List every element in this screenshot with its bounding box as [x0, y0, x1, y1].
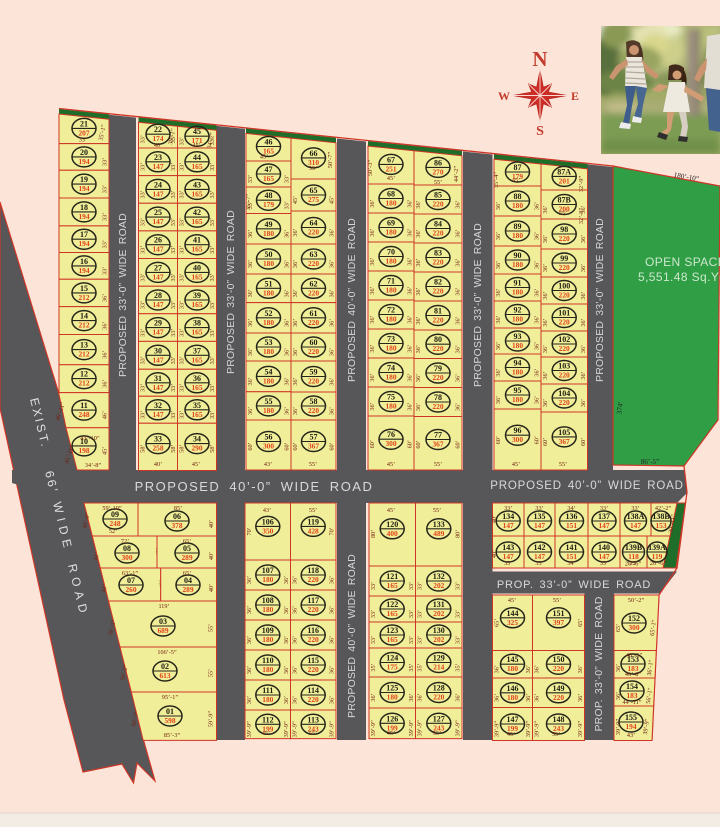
svg-text:123: 123	[386, 626, 398, 635]
svg-text:82: 82	[434, 278, 442, 287]
svg-text:106: 106	[262, 517, 274, 526]
svg-text:55’: 55’	[208, 624, 215, 632]
svg-text:180: 180	[263, 376, 274, 385]
svg-text:39’-9”: 39’-9”	[455, 720, 462, 736]
svg-text:36’: 36’	[415, 316, 422, 324]
svg-text:45’: 45’	[508, 597, 516, 604]
svg-text:165: 165	[387, 581, 398, 590]
svg-text:33’: 33’	[170, 273, 177, 281]
svg-text:220: 220	[559, 291, 570, 300]
svg-text:45: 45	[193, 127, 201, 136]
svg-text:113: 113	[307, 715, 319, 724]
svg-text:112: 112	[262, 715, 274, 724]
svg-text:220: 220	[308, 695, 319, 704]
svg-text:63’-1”: 63’-1”	[122, 570, 138, 577]
svg-text:55’: 55’	[434, 461, 442, 468]
svg-text:52’: 52’	[109, 528, 117, 535]
svg-text:165: 165	[191, 217, 202, 226]
svg-text:33’: 33’	[170, 384, 177, 392]
svg-text:139B: 139B	[625, 543, 643, 552]
svg-text:52: 52	[265, 309, 273, 318]
svg-text:36’: 36’	[455, 316, 462, 324]
svg-text:33’: 33’	[284, 175, 291, 183]
svg-text:36’: 36’	[415, 403, 422, 411]
svg-text:45’: 45’	[329, 196, 336, 204]
svg-text:36’: 36’	[415, 258, 422, 266]
svg-text:300: 300	[385, 439, 396, 448]
svg-text:36’: 36’	[329, 289, 336, 297]
svg-text:36’: 36’	[577, 694, 584, 702]
svg-text:07: 07	[127, 576, 135, 585]
svg-text:248: 248	[109, 519, 120, 528]
svg-text:33’: 33’	[140, 190, 147, 198]
svg-text:33’: 33’	[140, 328, 147, 336]
svg-text:220: 220	[553, 664, 564, 673]
svg-text:36’: 36’	[534, 396, 541, 404]
svg-text:72: 72	[387, 306, 395, 315]
svg-text:43’-10”: 43’-10”	[80, 435, 99, 442]
svg-text:258: 258	[152, 444, 163, 453]
svg-text:36’: 36’	[292, 606, 299, 614]
svg-text:180: 180	[512, 231, 523, 240]
svg-text:46’-8”: 46’-8”	[625, 671, 641, 678]
svg-text:33’: 33’	[140, 384, 147, 392]
svg-text:99: 99	[560, 254, 568, 263]
svg-text:147: 147	[152, 410, 163, 419]
svg-text:36’: 36’	[407, 286, 414, 294]
svg-text:613: 613	[159, 671, 170, 680]
svg-text:165: 165	[191, 245, 202, 254]
svg-text:179: 179	[263, 200, 274, 209]
svg-text:36’: 36’	[284, 230, 291, 238]
svg-text:74: 74	[387, 364, 395, 373]
svg-text:93: 93	[514, 332, 522, 341]
svg-text:367: 367	[559, 437, 570, 446]
svg-text:33’: 33’	[140, 163, 147, 171]
svg-text:23: 23	[154, 153, 162, 162]
svg-text:111: 111	[262, 686, 273, 695]
svg-text:60’: 60’	[534, 436, 541, 444]
svg-text:36’: 36’	[542, 205, 549, 213]
svg-text:36’: 36’	[329, 319, 336, 327]
svg-text:100: 100	[558, 282, 570, 291]
svg-text:180: 180	[263, 229, 274, 238]
svg-text:36’: 36’	[329, 696, 336, 704]
svg-text:180: 180	[512, 315, 523, 324]
svg-text:36’: 36’	[407, 402, 414, 410]
svg-text:33’: 33’	[209, 301, 216, 309]
svg-text:11: 11	[80, 401, 88, 410]
svg-text:36’: 36’	[534, 202, 541, 210]
svg-text:26’-6”: 26’-6”	[625, 561, 641, 568]
svg-text:70’: 70’	[246, 527, 253, 535]
svg-text:33’: 33’	[209, 328, 216, 336]
svg-text:44’-2”: 44’-2”	[453, 166, 460, 182]
svg-text:36’: 36’	[615, 692, 622, 700]
svg-text:33’: 33’	[179, 356, 186, 364]
svg-text:40’: 40’	[208, 552, 215, 560]
svg-text:46: 46	[265, 138, 273, 147]
svg-text:40’: 40’	[154, 142, 162, 149]
svg-text:33’: 33’	[179, 384, 186, 392]
svg-text:36’: 36’	[534, 665, 541, 673]
svg-text:175: 175	[387, 663, 398, 672]
svg-text:201: 201	[559, 176, 570, 185]
svg-text:86: 86	[434, 158, 442, 167]
svg-text:122: 122	[386, 600, 398, 609]
svg-text:180: 180	[507, 693, 518, 702]
svg-text:17: 17	[80, 230, 88, 239]
svg-text:80’: 80’	[455, 530, 462, 538]
svg-text:194: 194	[78, 184, 89, 193]
svg-text:55’: 55’	[559, 461, 567, 468]
svg-text:36’: 36’	[369, 402, 376, 410]
svg-text:180: 180	[512, 341, 523, 350]
svg-text:36’: 36’	[246, 696, 253, 704]
svg-text:36’: 36’	[407, 315, 414, 323]
svg-text:39’-9”: 39’-9”	[417, 720, 424, 736]
svg-text:33’: 33’	[140, 356, 147, 364]
svg-text:33’: 33’	[209, 356, 216, 364]
svg-text:180: 180	[385, 373, 396, 382]
svg-text:33’: 33’	[455, 636, 462, 644]
svg-text:36’: 36’	[542, 399, 549, 407]
svg-text:36’: 36’	[329, 348, 336, 356]
svg-text:67: 67	[387, 155, 395, 164]
svg-text:36’: 36’	[283, 606, 290, 614]
svg-text:55: 55	[265, 397, 273, 406]
svg-text:136: 136	[566, 512, 578, 521]
svg-text:36’: 36’	[247, 319, 254, 327]
svg-text:98: 98	[560, 225, 568, 234]
svg-text:180: 180	[262, 605, 273, 614]
svg-text:220: 220	[432, 373, 443, 382]
svg-text:33’: 33’	[140, 246, 147, 254]
svg-text:71: 71	[387, 277, 395, 286]
svg-text:69: 69	[387, 219, 395, 228]
svg-text:45’: 45’	[387, 507, 395, 514]
svg-text:36’: 36’	[329, 636, 336, 644]
svg-text:36’: 36’	[102, 350, 109, 358]
svg-text:153: 153	[655, 521, 666, 530]
svg-text:55’: 55’	[553, 597, 561, 604]
svg-text:58’: 58’	[209, 444, 216, 452]
svg-text:33’: 33’	[179, 190, 186, 198]
svg-text:33’: 33’	[170, 163, 177, 171]
svg-text:36’: 36’	[495, 288, 502, 296]
svg-text:33’: 33’	[209, 273, 216, 281]
svg-text:36’: 36’	[534, 368, 541, 376]
svg-text:32: 32	[154, 401, 162, 410]
svg-text:131: 131	[433, 600, 445, 609]
svg-text:33’: 33’	[408, 610, 415, 618]
svg-text:33’: 33’	[247, 175, 254, 183]
svg-text:47: 47	[265, 165, 273, 174]
svg-text:40’: 40’	[491, 550, 498, 558]
svg-text:165: 165	[191, 328, 202, 337]
svg-text:350: 350	[262, 526, 273, 535]
svg-text:34’: 34’	[567, 505, 575, 512]
svg-text:72’: 72’	[121, 538, 129, 545]
svg-text:36’: 36’	[542, 371, 549, 379]
svg-text:36’: 36’	[455, 258, 462, 266]
svg-text:33’: 33’	[179, 328, 186, 336]
svg-text:33’: 33’	[102, 185, 109, 193]
svg-text:95’-1”: 95’-1”	[162, 694, 178, 701]
svg-text:202: 202	[433, 635, 444, 644]
svg-text:04: 04	[184, 576, 192, 585]
svg-text:88: 88	[514, 192, 522, 201]
svg-text:45’: 45’	[192, 461, 200, 468]
svg-text:33’: 33’	[631, 505, 639, 512]
svg-text:33’: 33’	[417, 582, 424, 590]
svg-text:42’-2”: 42’-2”	[655, 505, 671, 512]
svg-text:165: 165	[263, 174, 274, 183]
svg-text:212: 212	[78, 350, 89, 359]
svg-text:151: 151	[553, 609, 565, 618]
svg-text:36: 36	[193, 374, 201, 383]
svg-text:36’: 36’	[246, 606, 253, 614]
svg-text:147: 147	[152, 245, 163, 254]
svg-text:30: 30	[154, 346, 162, 355]
svg-text:41: 41	[193, 236, 201, 245]
svg-text:39’-9”: 39’-9”	[494, 721, 501, 737]
svg-text:33’: 33’	[370, 610, 377, 618]
svg-text:50’-3”: 50’-3”	[367, 160, 374, 176]
svg-text:45’: 45’	[507, 731, 515, 738]
svg-text:39’-9”: 39’-9”	[370, 720, 377, 736]
svg-text:36’: 36’	[292, 666, 299, 674]
svg-text:220: 220	[308, 318, 319, 327]
svg-text:180: 180	[512, 395, 523, 404]
svg-text:33’: 33’	[408, 636, 415, 644]
svg-text:36’: 36’	[542, 291, 549, 299]
svg-text:40’: 40’	[208, 584, 215, 592]
svg-text:220: 220	[432, 402, 443, 411]
svg-text:36’: 36’	[292, 696, 299, 704]
svg-text:36’: 36’	[246, 666, 253, 674]
svg-text:220: 220	[559, 344, 570, 353]
svg-text:80’: 80’	[370, 530, 377, 538]
svg-text:36’: 36’	[407, 344, 414, 352]
svg-text:63: 63	[310, 250, 318, 259]
svg-text:220: 220	[432, 316, 443, 325]
svg-text:180: 180	[507, 664, 518, 673]
svg-text:147: 147	[152, 300, 163, 309]
svg-text:58’: 58’	[140, 444, 147, 452]
svg-text:36’: 36’	[283, 696, 290, 704]
svg-text:36’: 36’	[580, 235, 587, 243]
svg-text:40’: 40’	[491, 515, 498, 523]
svg-text:378: 378	[171, 521, 182, 530]
svg-text:33’: 33’	[370, 636, 377, 644]
svg-text:142: 142	[534, 543, 546, 552]
svg-text:25: 25	[154, 208, 162, 217]
svg-text:180: 180	[385, 199, 396, 208]
svg-text:120: 120	[386, 520, 398, 529]
svg-text:598: 598	[164, 716, 175, 725]
svg-text:36’: 36’	[495, 232, 502, 240]
svg-text:139A: 139A	[648, 543, 666, 552]
svg-text:85’-3”: 85’-3”	[164, 732, 180, 739]
svg-text:106’-5”: 106’-5”	[157, 649, 176, 656]
svg-text:PROP. 33’-0” WIDE ROAD: PROP. 33’-0” WIDE ROAD	[497, 579, 651, 591]
svg-text:86’-5”: 86’-5”	[641, 458, 659, 466]
svg-text:39’-9”: 39’-9”	[283, 721, 290, 737]
svg-text:43’: 43’	[264, 461, 272, 468]
svg-text:194: 194	[625, 722, 636, 731]
svg-text:489: 489	[433, 529, 444, 538]
svg-text:48’-5”: 48’-5”	[626, 652, 642, 659]
svg-text:36’: 36’	[525, 694, 532, 702]
svg-text:44’-11”: 44’-11”	[622, 699, 641, 706]
svg-text:65’: 65’	[183, 570, 191, 577]
svg-text:35’: 35’	[417, 663, 424, 671]
svg-text:36’: 36’	[247, 230, 254, 238]
svg-text:180: 180	[385, 257, 396, 266]
svg-text:212: 212	[78, 321, 89, 330]
svg-text:W: W	[498, 89, 510, 103]
svg-text:36’: 36’	[247, 407, 254, 415]
svg-text:14: 14	[80, 312, 88, 321]
svg-text:65: 65	[310, 186, 318, 195]
svg-text:36’: 36’	[284, 319, 291, 327]
svg-text:36’: 36’	[580, 291, 587, 299]
svg-text:60’: 60’	[329, 442, 336, 450]
svg-text:150: 150	[553, 655, 565, 664]
svg-text:35’: 35’	[408, 663, 415, 671]
svg-text:397: 397	[553, 618, 564, 627]
svg-text:36’: 36’	[455, 287, 462, 295]
svg-text:33’: 33’	[79, 137, 87, 144]
svg-text:26: 26	[154, 236, 162, 245]
svg-text:33’: 33’	[170, 246, 177, 254]
svg-text:45’: 45’	[512, 177, 520, 184]
svg-text:36’: 36’	[292, 260, 299, 268]
svg-text:133: 133	[433, 520, 445, 529]
svg-text:38: 38	[193, 319, 201, 328]
svg-text:325: 325	[507, 618, 518, 627]
svg-text:PROPOSED 40’-0” WIDE ROAD: PROPOSED 40’-0” WIDE ROAD	[346, 218, 358, 382]
svg-text:50: 50	[265, 250, 273, 259]
svg-text:147: 147	[503, 521, 514, 530]
svg-text:33’: 33’	[417, 610, 424, 618]
svg-text:212: 212	[78, 293, 89, 302]
svg-text:194: 194	[78, 239, 89, 248]
svg-text:85’: 85’	[174, 505, 182, 512]
svg-text:300: 300	[512, 435, 523, 444]
svg-text:36’: 36’	[415, 229, 422, 237]
svg-text:33’: 33’	[179, 218, 186, 226]
svg-text:55’: 55’	[309, 507, 317, 514]
svg-text:220: 220	[559, 398, 570, 407]
svg-text:PROP. 33’-0” WIDE ROAD: PROP. 33’-0” WIDE ROAD	[593, 596, 605, 731]
svg-text:01: 01	[166, 707, 174, 716]
svg-text:36’: 36’	[329, 407, 336, 415]
svg-text:300: 300	[628, 623, 639, 632]
svg-text:118: 118	[307, 566, 319, 575]
svg-text:65’: 65’	[183, 538, 191, 545]
svg-text:101: 101	[558, 309, 570, 318]
svg-text:147: 147	[152, 217, 163, 226]
svg-text:24: 24	[154, 180, 162, 189]
svg-text:34: 34	[193, 435, 201, 444]
svg-text:59’-10”: 59’-10”	[102, 505, 121, 512]
svg-text:33: 33	[154, 435, 162, 444]
svg-text:33’: 33’	[102, 213, 109, 221]
svg-text:220: 220	[432, 258, 443, 267]
svg-text:54: 54	[265, 367, 273, 376]
svg-text:251: 251	[385, 164, 396, 173]
svg-text:152: 152	[628, 614, 640, 623]
svg-text:36’: 36’	[455, 200, 462, 208]
svg-text:689: 689	[157, 626, 168, 635]
svg-text:36’: 36’	[495, 315, 502, 323]
svg-text:73: 73	[387, 335, 395, 344]
svg-text:85: 85	[434, 191, 442, 200]
svg-text:147: 147	[507, 715, 519, 724]
svg-text:165: 165	[191, 410, 202, 419]
svg-text:39’-9”: 39’-9”	[408, 720, 415, 736]
svg-text:60’: 60’	[415, 440, 422, 448]
svg-text:129: 129	[433, 654, 445, 663]
svg-text:N: N	[532, 47, 547, 71]
svg-text:180: 180	[263, 406, 274, 415]
svg-text:180: 180	[385, 315, 396, 324]
svg-text:144: 144	[507, 609, 519, 618]
svg-text:116: 116	[307, 626, 319, 635]
svg-text:39’-9”: 39’-9”	[534, 721, 541, 737]
svg-text:60’: 60’	[407, 440, 414, 448]
svg-text:36’: 36’	[329, 576, 336, 584]
svg-text:02: 02	[161, 662, 169, 671]
svg-text:102: 102	[558, 335, 570, 344]
svg-text:33’: 33’	[170, 301, 177, 309]
svg-text:146: 146	[507, 684, 519, 693]
svg-text:34’: 34’	[567, 560, 575, 567]
svg-text:15: 15	[80, 284, 88, 293]
svg-text:70’: 70’	[329, 527, 336, 535]
svg-text:79: 79	[434, 364, 442, 373]
svg-text:220: 220	[559, 263, 570, 272]
svg-text:36’: 36’	[407, 257, 414, 265]
svg-text:138A: 138A	[627, 512, 645, 521]
svg-text:36’: 36’	[283, 576, 290, 584]
svg-text:55’: 55’	[433, 730, 441, 737]
svg-text:36’: 36’	[292, 289, 299, 297]
svg-text:60’: 60’	[580, 438, 587, 446]
svg-text:147: 147	[152, 272, 163, 281]
svg-text:36’: 36’	[615, 664, 622, 672]
svg-text:220: 220	[553, 693, 564, 702]
svg-text:137: 137	[598, 512, 610, 521]
svg-text:36’: 36’	[580, 318, 587, 326]
svg-text:16: 16	[80, 257, 88, 266]
svg-text:220: 220	[432, 344, 443, 353]
svg-text:180: 180	[512, 201, 523, 210]
svg-text:84: 84	[434, 220, 442, 229]
svg-text:56: 56	[265, 433, 273, 442]
svg-text:59’-9”: 59’-9”	[208, 711, 215, 727]
svg-text:36’: 36’	[102, 321, 109, 329]
svg-text:87B: 87B	[558, 196, 572, 205]
svg-text:132: 132	[433, 572, 445, 581]
svg-text:55’: 55’	[434, 179, 442, 186]
svg-text:55’: 55’	[559, 210, 567, 217]
svg-text:147: 147	[152, 189, 163, 198]
svg-text:428: 428	[308, 526, 319, 535]
svg-text:33’: 33’	[179, 137, 186, 145]
